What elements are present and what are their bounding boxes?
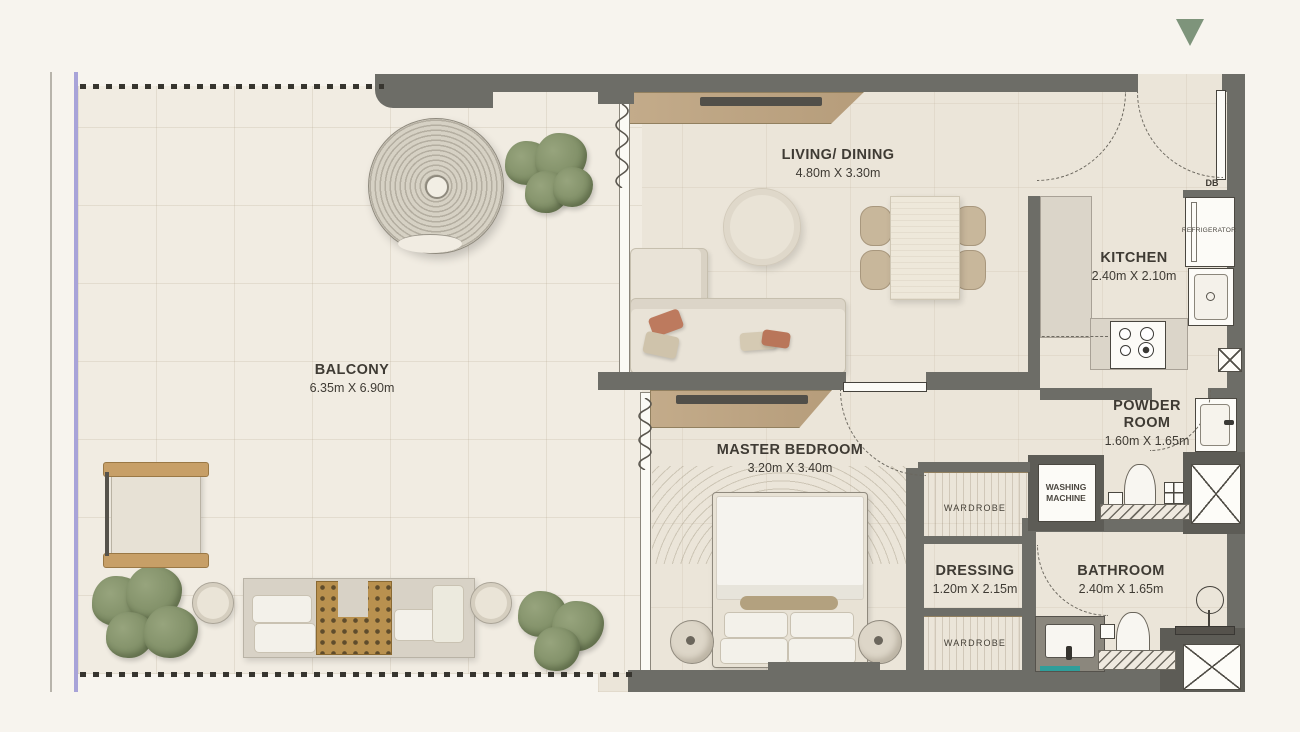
master-bedroom-name: MASTER BEDROOM: [717, 442, 864, 459]
wall-bottom: [628, 670, 1245, 692]
outdoor-sofa: [243, 578, 475, 658]
bed-duvet: [716, 496, 864, 600]
kitchen-counter-overhang-dashed: [1032, 336, 1108, 337]
wardrobe-upper-bottom-bar: [918, 536, 1030, 544]
room-label-powder-room: POWDER ROOM 1.60m X 1.65m: [1099, 398, 1195, 449]
room-label-living-dining: LIVING/ DINING 4.80m X 3.30m: [782, 147, 895, 181]
parasol-notch: [398, 234, 462, 253]
balcony-name: BALCONY: [310, 362, 395, 379]
wall-top-corner-block: [375, 74, 493, 108]
plant-foliage: [553, 167, 593, 207]
powder-room-name: POWDER ROOM: [1099, 398, 1195, 432]
tv-living: [700, 97, 822, 106]
kitchen-counter-left: [1040, 196, 1092, 338]
db-label: DB: [1206, 178, 1219, 189]
powder-room-dims: 1.60m X 1.65m: [1099, 434, 1195, 449]
floor-plan-canvas: WASHING MACHINE WARDROBE WARDROBE: [0, 0, 1300, 732]
bathroom-towel-bar: [1175, 626, 1235, 635]
wall-kitchen-left: [1028, 196, 1040, 390]
bathroom-pendant-light: [1196, 586, 1224, 614]
dining-chair: [860, 250, 892, 290]
bed-pillow: [790, 612, 854, 638]
room-label-bathroom: BATHROOM 2.40m X 1.65m: [1077, 563, 1165, 597]
wall-divider-living-bedroom-right: [926, 372, 1028, 390]
outdoor-sofa-trellis-notch: [338, 581, 368, 617]
lounge-chair: [105, 462, 205, 566]
lounge-chair-side-rail: [105, 472, 109, 556]
dining-table: [890, 196, 960, 300]
stove-burner: [1120, 345, 1131, 356]
bed-pillow: [724, 612, 788, 638]
lounge-chair-frame-top: [103, 462, 209, 477]
powder-sink-basin: [1200, 404, 1230, 446]
outdoor-sofa-cushion: [252, 595, 312, 623]
shaft-wall-small: [1218, 348, 1242, 372]
wardrobe-upper-top-bar: [918, 462, 1030, 472]
bathroom-dims: 2.40m X 1.65m: [1077, 582, 1165, 597]
bathroom-shower-hatch: [1098, 650, 1176, 670]
refrigerator-label: REFRIGERATOR: [1182, 227, 1236, 235]
coffee-table: [723, 188, 801, 266]
stove: [1110, 321, 1166, 369]
dressing-name: DRESSING: [933, 563, 1018, 580]
bathroom-name: BATHROOM: [1077, 563, 1165, 580]
master-bedroom-dims: 3.20m X 3.40m: [717, 461, 864, 476]
bathroom-faucet: [1066, 646, 1072, 660]
wardrobe-lower-top-bar: [918, 608, 1030, 616]
bathroom-vanity-accent: [1040, 666, 1080, 671]
dining-chair: [860, 206, 892, 246]
wall-bedroom-right: [906, 468, 924, 672]
wardrobe-upper-label: WARDROBE: [944, 503, 1006, 514]
kitchen-sink-drain: [1206, 292, 1215, 301]
bed-pillow: [788, 638, 856, 664]
curtain-icon-living: [613, 104, 631, 188]
balcony-boundary-dashed-bottom: [80, 672, 636, 677]
side-table: [192, 582, 234, 624]
bathroom-paper-holder: [1100, 624, 1115, 639]
curtain-icon-bedroom: [636, 398, 654, 470]
property-line-purple: [74, 72, 78, 692]
nightstand-lamp: [874, 636, 883, 645]
shaft-bottom: [1183, 644, 1241, 690]
wall-divider-living-bedroom-left: [598, 372, 846, 390]
living-dining-name: LIVING/ DINING: [782, 147, 895, 164]
kitchen-name: KITCHEN: [1092, 250, 1177, 267]
outdoor-sofa-back-pillow: [432, 585, 464, 643]
shaft-mid: [1191, 464, 1241, 524]
balcony-dims: 6.35m X 6.90m: [310, 381, 395, 396]
room-label-balcony: BALCONY 6.35m X 6.90m: [310, 362, 395, 396]
tv-bedroom: [676, 395, 808, 404]
bed-bolster: [740, 596, 838, 610]
lounge-chair-frame-bottom: [103, 553, 209, 568]
plant-foliage: [534, 627, 580, 671]
room-label-dressing: DRESSING 1.20m X 2.15m: [933, 563, 1018, 597]
page-marker-triangle-icon: [1176, 19, 1204, 46]
washing-machine-label-line1: WASHING: [1046, 482, 1087, 493]
wall-bottom-step: [768, 662, 880, 672]
outdoor-sofa-cushion: [254, 623, 316, 653]
room-label-master-bedroom: MASTER BEDROOM 3.20m X 3.40m: [717, 442, 864, 476]
washing-machine-label-line2: MACHINE: [1046, 493, 1087, 504]
nightstand-lamp: [686, 636, 695, 645]
dressing-dims: 1.20m X 2.15m: [933, 582, 1018, 597]
powder-sink-faucet: [1224, 420, 1234, 425]
plant-foliage: [144, 606, 198, 658]
wall-stub-living-top-left: [598, 74, 634, 104]
powder-floor-drain: [1164, 482, 1184, 504]
side-table: [470, 582, 512, 624]
stove-burner: [1119, 328, 1131, 340]
plant: [505, 133, 605, 223]
room-label-kitchen: KITCHEN 2.40m X 2.10m: [1092, 250, 1177, 284]
plant: [92, 566, 202, 670]
balcony-boundary-dashed-top: [80, 84, 384, 89]
lounge-chair-cushion: [111, 472, 201, 558]
stove-burner: [1138, 342, 1154, 358]
parasol-pole: [425, 175, 449, 199]
wall-top: [480, 74, 1138, 92]
stove-burner: [1140, 327, 1154, 341]
kitchen-dims: 2.40m X 2.10m: [1092, 269, 1177, 284]
plant: [518, 585, 613, 675]
washing-machine-label: WASHING MACHINE: [1046, 482, 1087, 503]
wardrobe-lower-label: WARDROBE: [944, 638, 1006, 649]
wall-dressing-bathroom: [1022, 528, 1036, 672]
wall-right: [1227, 74, 1245, 692]
living-dining-dims: 4.80m X 3.30m: [782, 166, 895, 181]
bed-pillow: [720, 638, 788, 664]
property-line-gray: [50, 72, 52, 692]
powder-wet-area-hatch: [1100, 504, 1190, 520]
